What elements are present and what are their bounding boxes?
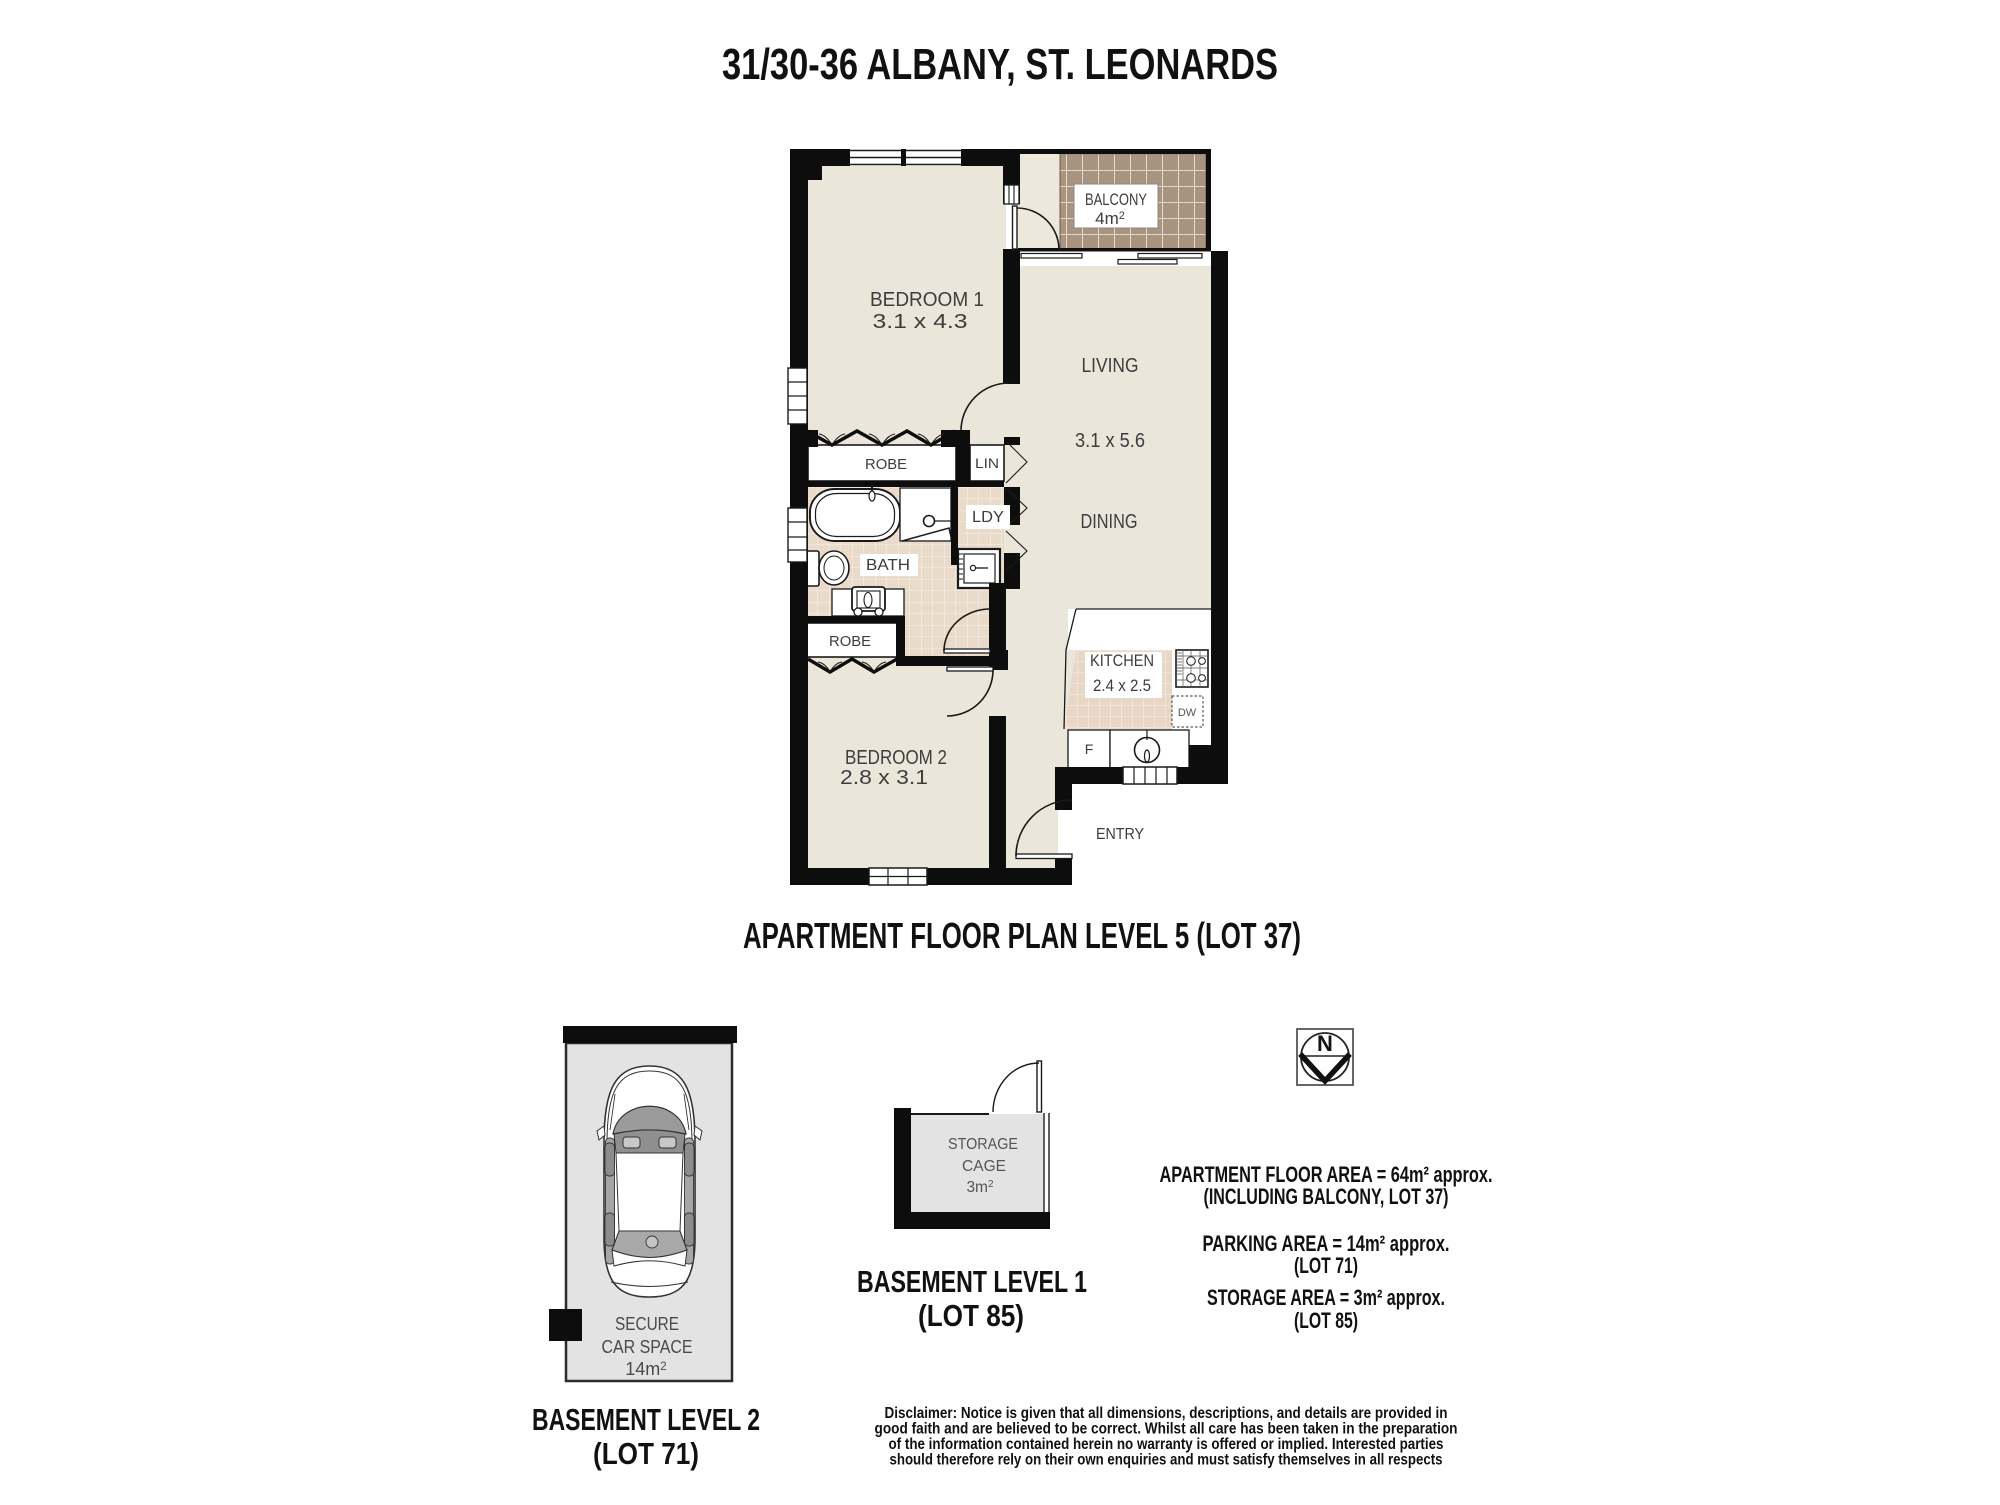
svg-text:DW: DW [1178,707,1197,719]
svg-text:3.1 x 5.6: 3.1 x 5.6 [1075,430,1145,452]
svg-text:ENTRY: ENTRY [1096,826,1144,843]
svg-text:LDY: LDY [972,509,1004,526]
svg-text:BALCONY: BALCONY [1085,190,1147,209]
svg-text:CAR SPACE: CAR SPACE [602,1337,693,1357]
svg-text:Disclaimer: Notice is given th: Disclaimer: Notice is given that all dim… [885,1405,1448,1422]
svg-text:BEDROOM 2: BEDROOM 2 [845,747,947,769]
svg-text:KITCHEN: KITCHEN [1090,651,1154,670]
svg-text:2.4 x 2.5: 2.4 x 2.5 [1093,676,1151,695]
svg-text:ROBE: ROBE [865,456,907,473]
svg-text:BASEMENT LEVEL 2: BASEMENT LEVEL 2 [532,1402,760,1437]
svg-text:2.8 x 3.1: 2.8 x 3.1 [840,767,928,789]
svg-text:SECURE: SECURE [615,1314,679,1334]
svg-text:N: N [1317,1031,1333,1056]
svg-text:(LOT 85): (LOT 85) [918,1298,1024,1333]
svg-text:should therefore rely on their: should therefore rely on their own enqui… [890,1452,1443,1469]
svg-text:LIN: LIN [975,455,999,471]
svg-text:LIVING: LIVING [1082,355,1139,377]
svg-text:(LOT 85): (LOT 85) [1294,1308,1358,1333]
svg-text:F: F [1085,741,1094,757]
svg-text:BEDROOM 1: BEDROOM 1 [870,289,984,311]
svg-text:STORAGE: STORAGE [948,1136,1018,1153]
svg-text:CAGE: CAGE [962,1158,1006,1175]
svg-text:ROBE: ROBE [829,633,871,650]
svg-text:31/30-36 ALBANY, ST. LEONARDS: 31/30-36 ALBANY, ST. LEONARDS [722,40,1278,89]
svg-text:BATH: BATH [866,557,910,574]
svg-text:(LOT 71): (LOT 71) [593,1436,699,1471]
svg-text:DINING: DINING [1081,511,1138,533]
svg-text:of the information contained h: of the information contained herein no w… [889,1436,1444,1453]
svg-text:(INCLUDING BALCONY, LOT 37): (INCLUDING BALCONY, LOT 37) [1204,1184,1449,1209]
svg-text:3.1 x 4.3: 3.1 x 4.3 [873,311,968,333]
svg-text:(LOT 71): (LOT 71) [1294,1253,1358,1278]
svg-text:BASEMENT LEVEL 1: BASEMENT LEVEL 1 [857,1264,1087,1299]
svg-text:STORAGE AREA = 3m² approx.: STORAGE AREA = 3m² approx. [1207,1285,1445,1310]
svg-text:good faith and are believed to: good faith and are believed to be correc… [875,1421,1458,1438]
svg-text:APARTMENT FLOOR PLAN LEVEL 5 (: APARTMENT FLOOR PLAN LEVEL 5 (LOT 37) [743,915,1301,956]
